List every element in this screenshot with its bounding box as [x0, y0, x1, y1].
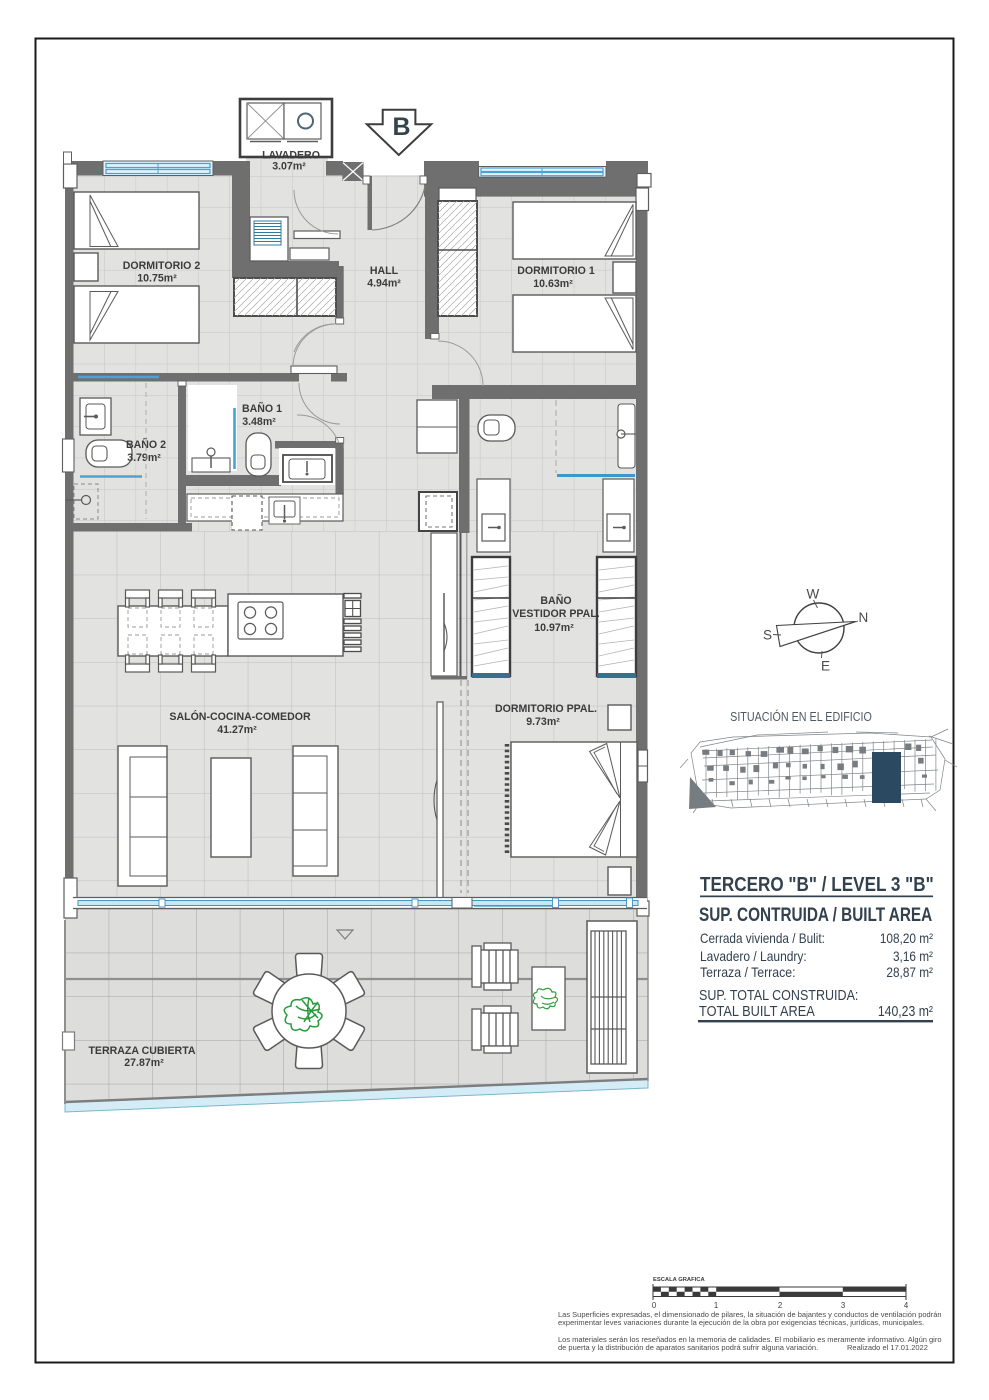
svg-text:DORMITORIO 2: DORMITORIO 2: [123, 260, 201, 272]
svg-text:4: 4: [904, 1301, 909, 1310]
svg-text:BAÑO 1: BAÑO 1: [242, 402, 282, 415]
svg-text:10.75m²: 10.75m²: [137, 273, 177, 285]
svg-text:ESCALA GRAFICA: ESCALA GRAFICA: [653, 1277, 705, 1283]
svg-text:0: 0: [652, 1301, 657, 1310]
svg-text:3,16 m²: 3,16 m²: [893, 949, 933, 964]
svg-text:41.27m²: 41.27m²: [217, 724, 257, 736]
svg-text:TERRAZA CUBIERTA: TERRAZA CUBIERTA: [88, 1045, 195, 1057]
svg-text:SALÓN-COCINA-COMEDOR: SALÓN-COCINA-COMEDOR: [169, 710, 311, 723]
svg-text:3.07m²: 3.07m²: [272, 161, 306, 173]
svg-text:DORMITORIO 1: DORMITORIO 1: [517, 265, 595, 277]
svg-text:3: 3: [841, 1301, 845, 1310]
svg-text:3.79m²: 3.79m²: [127, 452, 161, 464]
svg-text:9.73m²: 9.73m²: [526, 716, 560, 728]
svg-text:3.48m²: 3.48m²: [242, 416, 276, 428]
svg-text:140,23 m²: 140,23 m²: [878, 1003, 934, 1019]
svg-text:SUP. TOTAL CONSTRUIDA:: SUP. TOTAL CONSTRUIDA:: [699, 987, 858, 1003]
svg-text:TOTAL BUILT AREA: TOTAL BUILT AREA: [699, 1003, 816, 1019]
svg-text:SITUACIÓN EN EL EDIFICIO: SITUACIÓN EN EL EDIFICIO: [730, 709, 872, 724]
svg-text:Lavadero / Laundry:: Lavadero / Laundry:: [700, 948, 807, 964]
svg-text:E: E: [821, 659, 830, 674]
svg-text:HALL: HALL: [370, 265, 399, 277]
svg-text:Terraza / Terrace:: Terraza / Terrace:: [700, 964, 796, 980]
svg-text:B: B: [393, 113, 411, 141]
svg-text:4.94m²: 4.94m²: [367, 278, 401, 290]
svg-text:N: N: [859, 610, 869, 625]
svg-text:27.87m²: 27.87m²: [124, 1057, 164, 1069]
svg-text:10.97m²: 10.97m²: [534, 622, 574, 634]
svg-text:VESTIDOR PPAL.: VESTIDOR PPAL.: [512, 608, 600, 620]
svg-text:10.63m²: 10.63m²: [533, 278, 573, 290]
svg-text:TERCERO "B" / LEVEL 3 "B": TERCERO "B" / LEVEL 3 "B": [700, 873, 934, 896]
svg-text:BAÑO: BAÑO: [540, 594, 571, 607]
svg-text:1: 1: [714, 1301, 718, 1310]
svg-text:Realizado el 17.01.2022: Realizado el 17.01.2022: [847, 1343, 928, 1352]
svg-text:experimentar leves variaciones: experimentar leves variaciones durante l…: [558, 1318, 924, 1327]
svg-text:de puerta y la distribución de: de puerta y la distribución de aparatos …: [558, 1343, 818, 1352]
svg-text:108,20 m²: 108,20 m²: [880, 931, 933, 946]
svg-text:2: 2: [778, 1301, 782, 1310]
svg-text:SUP. CONTRUIDA / BUILT AREA: SUP. CONTRUIDA / BUILT AREA: [699, 903, 932, 925]
svg-text:DORMITORIO PPAL.: DORMITORIO PPAL.: [495, 703, 597, 715]
svg-text:28,87 m²: 28,87 m²: [886, 965, 933, 980]
svg-text:S: S: [763, 628, 772, 643]
svg-text:W: W: [807, 587, 820, 602]
svg-text:Cerrada vivienda / Bulit:: Cerrada vivienda / Bulit:: [700, 931, 825, 946]
